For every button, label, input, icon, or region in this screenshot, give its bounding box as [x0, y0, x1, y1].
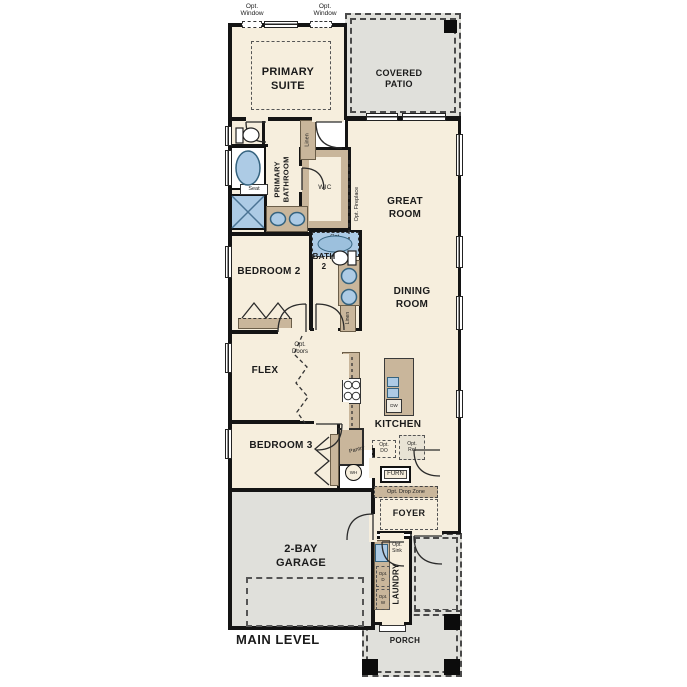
main-level-label: MAIN LEVEL: [236, 632, 346, 648]
porch-label: PORCH: [375, 636, 435, 646]
island-sink-bowl-2: [387, 388, 399, 398]
opt-window-right-label: Opt. Window: [305, 3, 345, 18]
opt-window-left: [242, 21, 262, 28]
flex-label: FLEX: [235, 365, 295, 378]
opening-bedroom-3: [314, 418, 340, 424]
opening-front-door: [412, 529, 442, 536]
laundry-label: LAUNDRY: [391, 564, 401, 605]
water-heater-label: WH: [350, 470, 358, 475]
kitchen-label: KITCHEN: [358, 419, 438, 432]
opt-window-left-label: Opt. Window: [232, 3, 272, 18]
patio-column: [444, 20, 457, 33]
opt-drop-zone-label: Opt. Drop Zone: [387, 489, 425, 495]
window-kitchen-right: [456, 390, 463, 418]
window-suite-top: [264, 21, 298, 28]
opt-window-right: [310, 21, 332, 28]
window-tub: [225, 150, 232, 186]
window-great-room-top-1: [366, 113, 398, 121]
window-flex: [225, 343, 232, 373]
opt-double-oven-label: Opt. DO: [379, 443, 388, 454]
window-right-mid: [456, 236, 463, 268]
kitchen-range: [342, 378, 361, 404]
opt-refrigerator-label: Opt. Ref: [407, 442, 416, 453]
linen-2-label: Linen: [345, 312, 351, 324]
bath-2-label: BATH 2: [304, 252, 344, 272]
opt-drop-zone: Opt. Drop Zone: [374, 486, 438, 498]
window-toilet: [225, 126, 232, 146]
opening-bedroom-2: [278, 328, 306, 334]
opening-toilet: [246, 115, 268, 121]
laundry-step: [379, 625, 406, 632]
water-heater: WH: [345, 464, 362, 481]
pantry-label: Pantry: [349, 445, 366, 455]
opening-suite-entry: [312, 115, 344, 122]
opening-kitchen-hall-2: [342, 402, 349, 430]
bedroom-2-label: BEDROOM 2: [229, 266, 309, 279]
pantry-label-wrap: Pantry: [337, 444, 377, 456]
porch-column-3: [444, 659, 460, 675]
primary-suite-label: PRIMARY SUITE: [248, 66, 328, 94]
bedroom-3-room: [228, 421, 340, 491]
opt-fireplace-label: Opt. Fireplace: [354, 187, 360, 222]
primary-vanity: [266, 206, 308, 232]
patio-sliding-door: [402, 113, 446, 121]
laundry-label-wrap: LAUNDRY: [361, 556, 431, 612]
opening-kitchen-hall-1: [342, 354, 349, 380]
door-primary-suite: [316, 122, 342, 148]
furnace: FURN: [380, 466, 411, 483]
foyer-label: FOYER: [379, 508, 439, 519]
opening-garage-door: [369, 514, 377, 542]
dishwasher: DW: [386, 399, 402, 413]
covered-patio-label: COVERED PATIO: [359, 68, 439, 91]
bedroom-3-closet: [330, 434, 339, 486]
porch-column-1: [444, 614, 460, 630]
opening-bath-2: [314, 326, 338, 333]
opening-laundry-exterior: [382, 618, 404, 625]
porch-column-2: [362, 659, 378, 675]
garage-door-outline: [246, 577, 364, 627]
bedroom-3-label: BEDROOM 3: [241, 440, 321, 453]
linen-1-label: Linen: [305, 133, 311, 146]
opening-laundry: [380, 533, 404, 540]
primary-bathroom-label-wrap: PRIMARY BATHROOM: [246, 150, 318, 208]
island-sink-bowl-1: [387, 377, 399, 387]
opening-hall-foyer: [369, 458, 377, 478]
furnace-label: FURN: [387, 471, 404, 478]
window-dining-right: [456, 296, 463, 330]
garage-label: 2-BAY GARAGE: [261, 543, 341, 571]
opt-sink-label: Opt. Sink: [386, 543, 408, 554]
floor-plan: Linen Linen DW Opt. Drop Zone Seat Opt. …: [0, 0, 687, 687]
primary-bathroom-label: PRIMARY BATHROOM: [273, 156, 292, 202]
dishwasher-label: DW: [390, 403, 398, 408]
window-great-room-right: [456, 134, 463, 176]
bath-wall-2: [262, 120, 265, 147]
opt-doors-label: Opt. Doors: [280, 342, 320, 355]
dining-room-label: DINING ROOM: [372, 286, 452, 311]
opt-refrigerator-box: Opt. Ref: [399, 435, 425, 460]
opt-shower-label: Opt. Shower: [315, 234, 356, 246]
window-bedroom-3: [225, 429, 232, 459]
opt-fireplace-label-wrap: Opt. Fireplace: [327, 174, 387, 234]
linen-closet-2: Linen: [340, 304, 356, 332]
